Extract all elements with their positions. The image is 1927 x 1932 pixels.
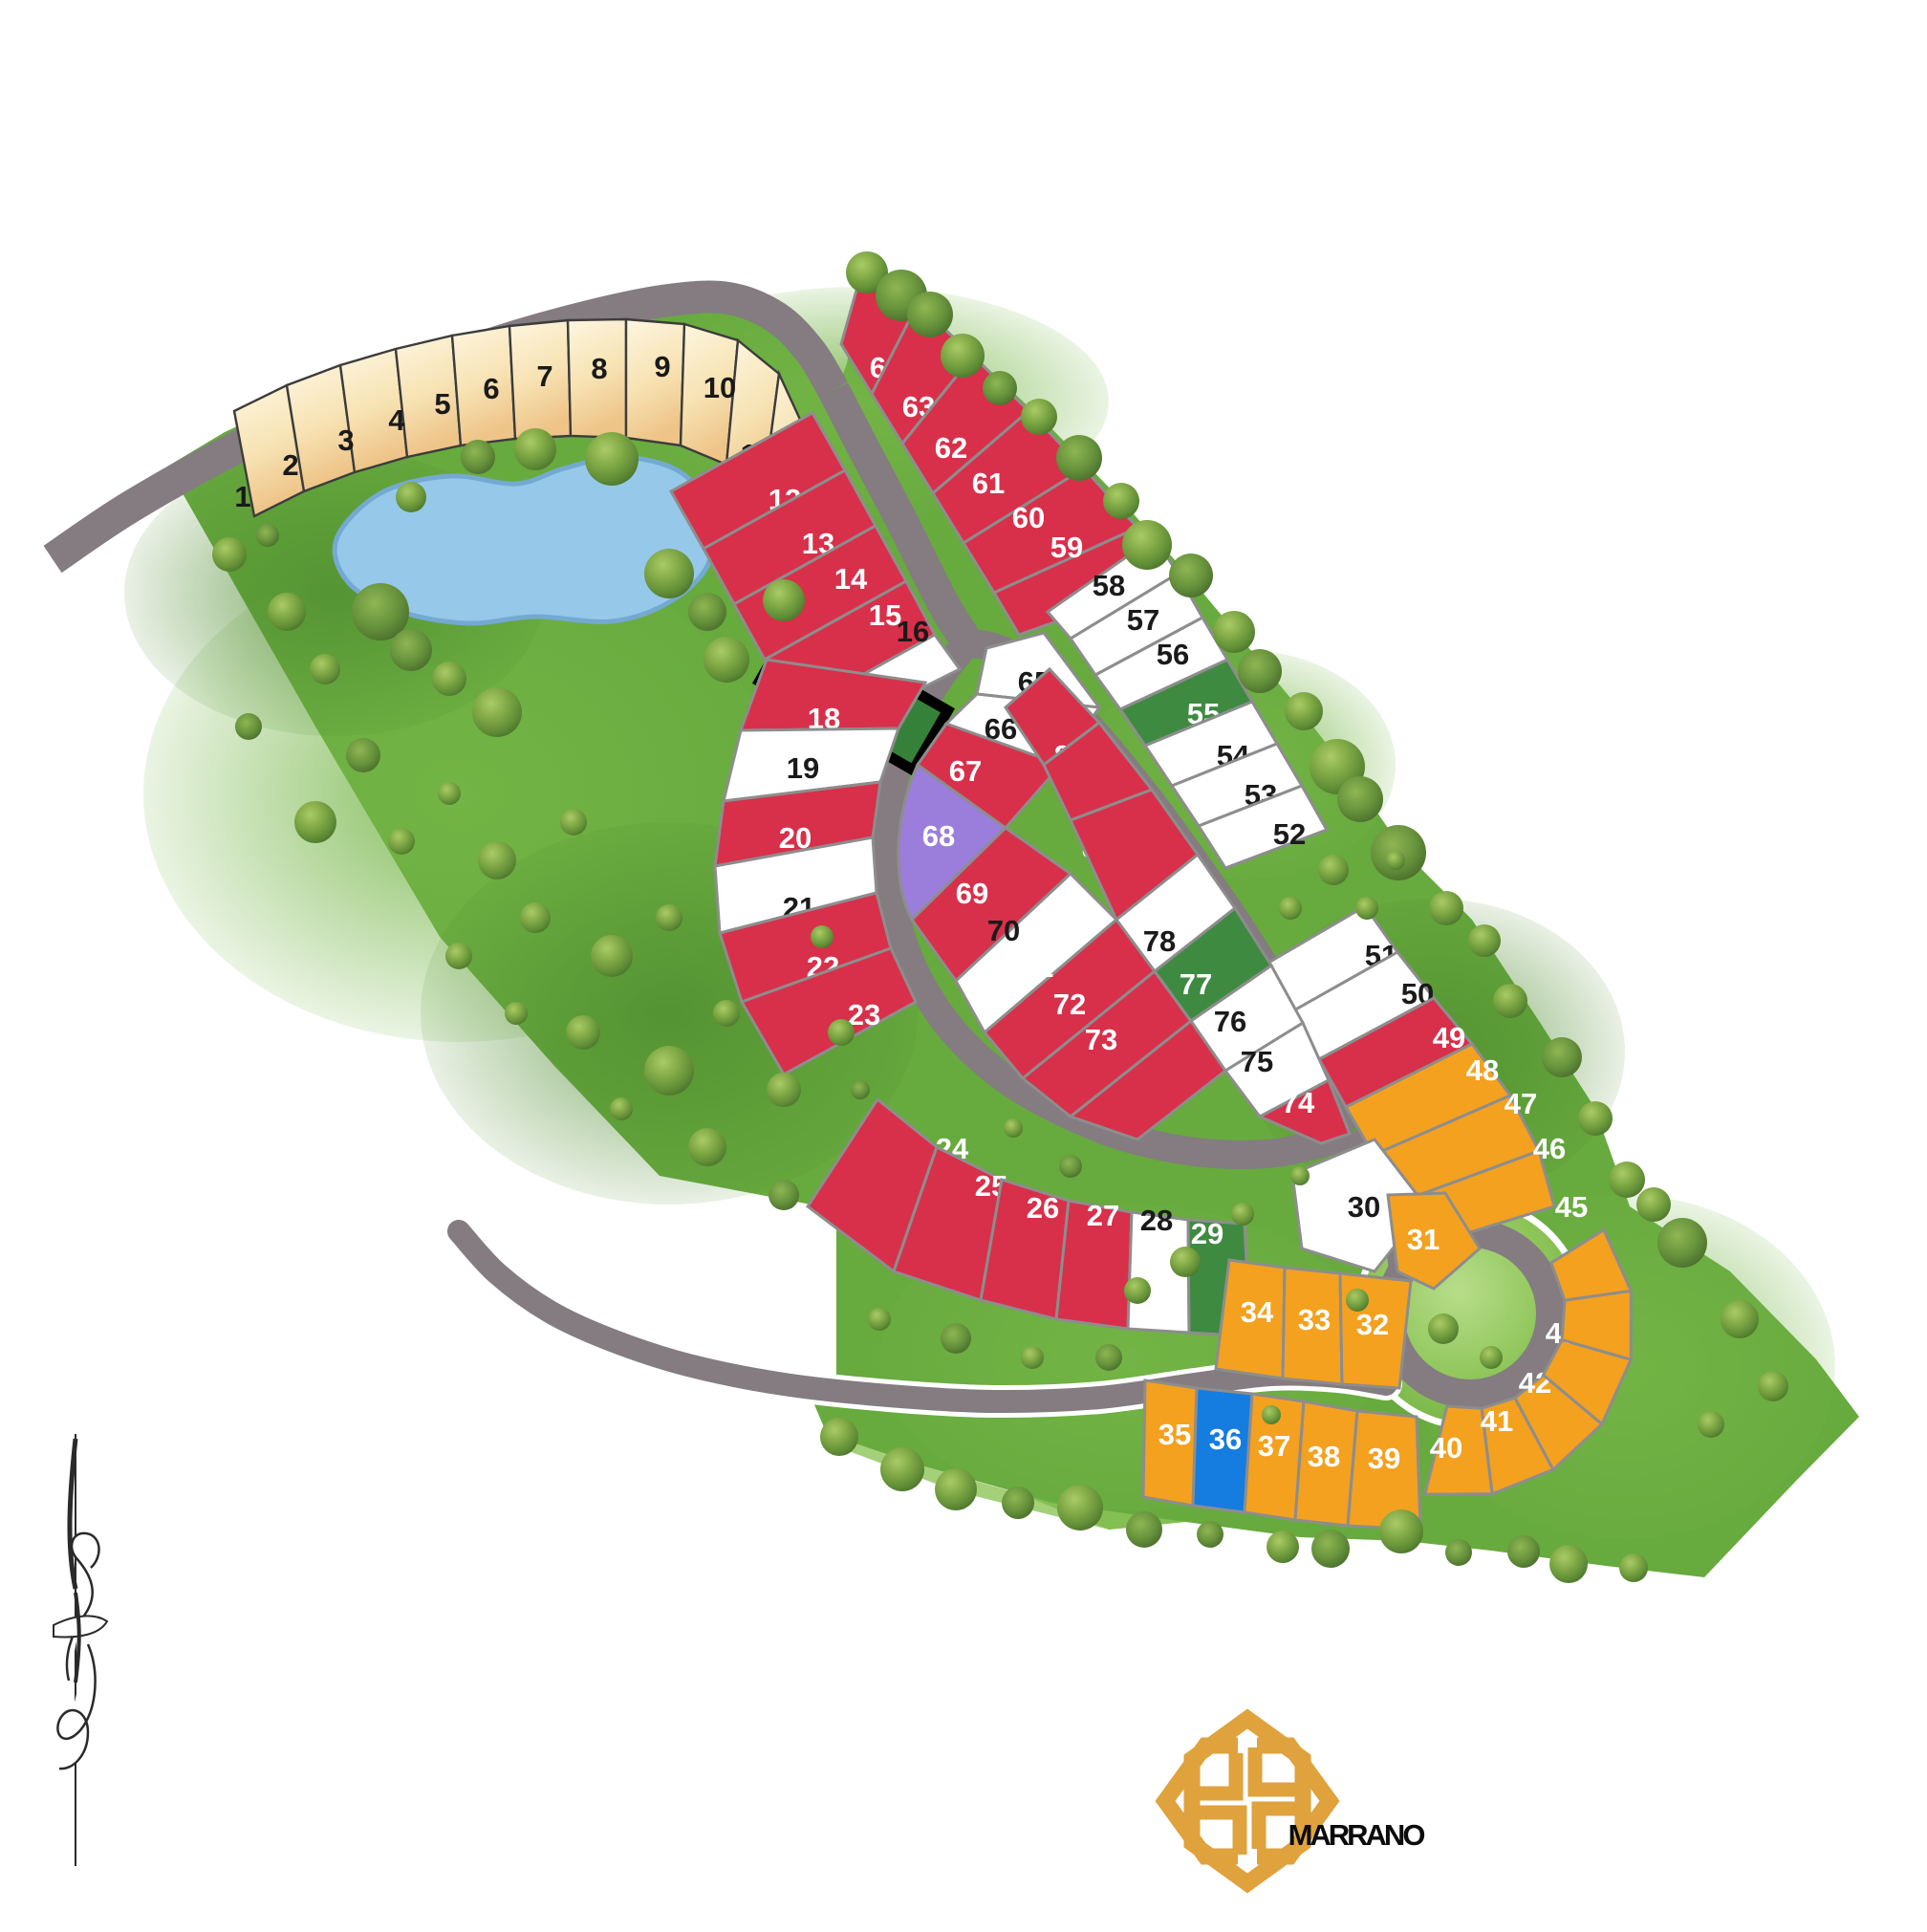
svg-text:30: 30: [1348, 1190, 1380, 1224]
svg-text:4: 4: [388, 403, 405, 437]
svg-text:8: 8: [591, 352, 607, 385]
svg-text:33: 33: [1298, 1303, 1331, 1336]
svg-text:16: 16: [897, 615, 929, 648]
svg-text:27: 27: [1087, 1199, 1119, 1232]
svg-text:40: 40: [1430, 1431, 1462, 1465]
svg-text:62: 62: [935, 431, 967, 465]
svg-text:10: 10: [704, 371, 736, 404]
svg-text:76: 76: [1214, 1005, 1246, 1038]
svg-text:5: 5: [434, 387, 450, 421]
svg-text:67: 67: [949, 754, 982, 788]
svg-text:75: 75: [1241, 1045, 1273, 1078]
svg-text:45: 45: [1555, 1190, 1588, 1224]
svg-text:38: 38: [1308, 1440, 1340, 1473]
svg-text:48: 48: [1466, 1053, 1499, 1087]
svg-text:56: 56: [1157, 638, 1189, 671]
svg-text:MARRANO: MARRANO: [1288, 1818, 1425, 1852]
svg-text:35: 35: [1158, 1418, 1191, 1451]
svg-text:36: 36: [1209, 1422, 1242, 1456]
svg-text:9: 9: [654, 350, 670, 383]
svg-text:19: 19: [787, 751, 819, 785]
svg-text:52: 52: [1273, 817, 1306, 851]
svg-text:37: 37: [1258, 1429, 1290, 1463]
svg-text:74: 74: [1282, 1086, 1315, 1119]
svg-text:7: 7: [536, 359, 552, 393]
svg-text:73: 73: [1085, 1023, 1117, 1056]
svg-text:70: 70: [987, 914, 1020, 947]
svg-text:26: 26: [1027, 1191, 1059, 1225]
svg-text:57: 57: [1127, 603, 1159, 637]
svg-text:34: 34: [1241, 1295, 1274, 1329]
svg-text:61: 61: [972, 467, 1005, 500]
svg-text:2: 2: [282, 448, 298, 482]
svg-text:59: 59: [1050, 531, 1083, 564]
svg-text:71: 71: [1021, 950, 1053, 984]
svg-text:46: 46: [1533, 1132, 1566, 1165]
svg-text:77: 77: [1180, 967, 1212, 1001]
svg-text:1: 1: [234, 480, 250, 513]
svg-text:68: 68: [922, 819, 955, 853]
svg-text:41: 41: [1481, 1404, 1513, 1438]
svg-text:78: 78: [1143, 924, 1176, 958]
svg-text:58: 58: [1093, 569, 1125, 602]
svg-text:31: 31: [1407, 1223, 1440, 1256]
svg-text:39: 39: [1368, 1442, 1400, 1475]
svg-text:60: 60: [1012, 501, 1045, 534]
svg-text:29: 29: [1191, 1217, 1223, 1250]
svg-text:14: 14: [834, 562, 868, 596]
svg-text:47: 47: [1505, 1087, 1537, 1120]
svg-text:32: 32: [1356, 1308, 1389, 1341]
svg-text:3: 3: [337, 423, 354, 457]
svg-text:28: 28: [1140, 1204, 1173, 1237]
svg-text:6: 6: [483, 372, 499, 405]
svg-text:72: 72: [1053, 988, 1086, 1021]
svg-text:69: 69: [956, 877, 988, 910]
